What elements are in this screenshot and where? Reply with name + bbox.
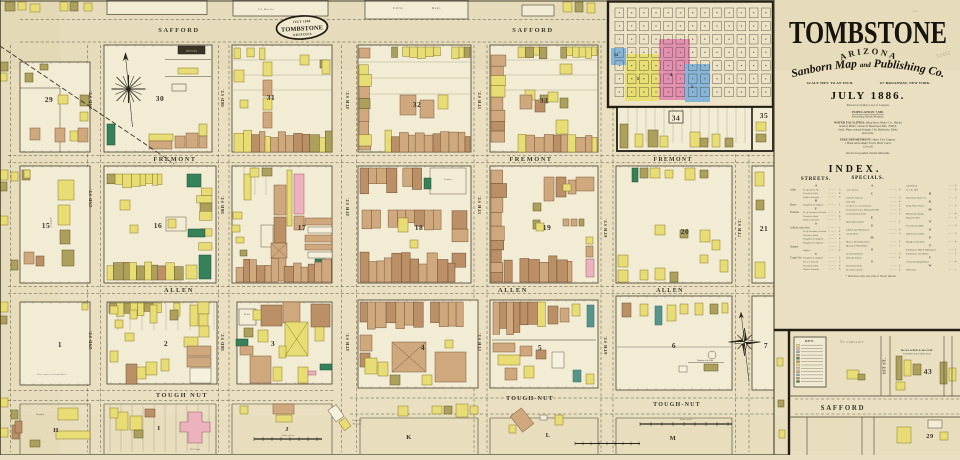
svg-text:Sixth to Seventh: Sixth to Seventh (803, 196, 820, 199)
svg-text:INDEX.: INDEX. (829, 164, 882, 175)
svg-text:SPECIALS.: SPECIALS. (852, 176, 885, 181)
svg-text:I: I (157, 425, 160, 432)
svg-text:14: 14 (614, 52, 618, 57)
svg-text:Sixth to Seventh: Sixth to Seventh (803, 219, 820, 222)
svg-text:Episcopal Church: Episcopal Church (846, 221, 865, 224)
svg-text:SCALE 50FT. TO AN INCH.: SCALE 50FT. TO AN INCH. (807, 81, 854, 85)
svg-text:6TH ST.: 6TH ST. (603, 336, 608, 355)
svg-text:Occidental Hotel: Occidental Hotel (846, 253, 863, 256)
svg-text:1: 1 (58, 340, 62, 349)
svg-text:Gird Block: Gird Block (906, 185, 918, 188)
svg-text:16: 16 (154, 221, 163, 230)
svg-text:TOUGH-NUT: TOUGH-NUT (653, 402, 701, 408)
svg-text:Toughnut to Safford: Toughnut to Safford (803, 238, 824, 241)
svg-text:Masonic Hall: Masonic Hall (906, 217, 920, 220)
svg-text:W. of Second to Fourth: W. of Second to Fourth (803, 211, 827, 214)
svg-text:Cochise Co. Court House: Cochise Co. Court House (846, 205, 872, 208)
svg-text:Gilded Age Mining Co.: Gilded Age Mining Co. (846, 229, 870, 232)
svg-text:U.S. Mail Sta.: U.S. Mail Sta. (258, 8, 275, 11)
svg-text:* Indicates only one side of S: * Indicates only one side of Street show… (846, 275, 897, 278)
svg-text:Tombstone Mill & Mining Co: Tombstone Mill & Mining Co (906, 249, 937, 252)
svg-text:Scale of feet: Scale of feet (282, 434, 294, 437)
svg-text:M.E.Church: M.E.Church (190, 449, 200, 451)
svg-text:No exposure: No exposure (839, 339, 864, 344)
svg-text:Papago Cash Store: Papago Cash Store (906, 241, 926, 244)
svg-text:Fourth to Fifth: Fourth to Fifth (802, 264, 819, 267)
svg-text:ALLEN: ALLEN (656, 288, 684, 294)
svg-text:SAFFORD: SAFFORD (821, 405, 866, 412)
svg-text:4TH ST.: 4TH ST. (345, 333, 350, 352)
svg-text:FOUNDRY & MACHINE SHOP: FOUNDRY & MACHINE SHOP (903, 352, 931, 355)
svg-text:Miners Boarding House: Miners Boarding House (846, 241, 871, 244)
svg-text:STREETS.: STREETS. (801, 177, 831, 182)
svg-text:Sumner: Sumner (790, 245, 798, 248)
svg-text:Pit Sal.: Pit Sal. (244, 314, 251, 316)
svg-text:and wells.: and wells. (862, 131, 874, 135)
svg-text:Allen: Allen (790, 188, 797, 191)
svg-text:New Boston Mill: New Boston Mill (906, 225, 924, 228)
svg-text:Dept.: Dept. (432, 6, 442, 10)
svg-text:2ND ST.: 2ND ST. (88, 91, 93, 110)
svg-text:20: 20 (681, 227, 690, 236)
svg-text:Catholic Church: Catholic Church (846, 197, 863, 200)
svg-text:5: 5 (538, 343, 542, 352)
svg-text:Cosmopolitan Hotel: Cosmopolitan Hotel (846, 213, 867, 216)
svg-text:F: F (815, 206, 817, 210)
svg-text:POPULATION 7,500.: POPULATION 7,500. (852, 110, 884, 114)
svg-text:Vizina Hoisting Works: Vizina Hoisting Works (906, 261, 929, 264)
svg-text:4TH ST.: 4TH ST. (345, 198, 350, 217)
svg-text:Fourth to Sixth: Fourth to Sixth (802, 215, 819, 218)
svg-text:TOUGH NUT: TOUGH NUT (156, 392, 208, 399)
svg-text:Prevailing Winds Westerly.: Prevailing Winds Westerly. (851, 114, 884, 118)
svg-text:4TH ST.: 4TH ST. (345, 91, 350, 110)
svg-text:FREMONT: FREMONT (653, 157, 692, 163)
svg-text:Watervale: Watervale (906, 269, 917, 272)
svg-text:29: 29 (926, 433, 934, 440)
svg-text:Lumber: Lumber (444, 179, 452, 181)
svg-text:L: L (546, 432, 551, 439)
svg-text:M: M (870, 236, 873, 240)
svg-text:Fourth to Sixth: Fourth to Sixth (802, 234, 819, 237)
svg-text:3RD ST.: 3RD ST. (220, 333, 225, 352)
svg-text:7: 7 (764, 341, 768, 350)
svg-text:TOUGH-NUT: TOUGH-NUT (506, 396, 554, 402)
svg-text:SAFFORD: SAFFORD (512, 27, 553, 34)
svg-text:2ND ST.: 2ND ST. (88, 189, 93, 208)
svg-text:5TH ST.: 5TH ST. (477, 196, 482, 215)
svg-text:Vizina Cons: Vizina Cons (352, 420, 362, 422)
svg-text:Contention Cons. Mining & Mill: Contention Cons. Mining & Mill (846, 209, 879, 212)
svg-text:Toughnut to Safford: Toughnut to Safford (803, 204, 824, 207)
svg-text:Schieffelin Hall: Schieffelin Hall (846, 265, 862, 268)
svg-text:Scale of feet: Scale of feet (680, 418, 692, 421)
svg-text:5TH ST.: 5TH ST. (477, 91, 482, 110)
svg-text:First to Second: First to Second (802, 261, 819, 264)
svg-text:KEY.: KEY. (805, 339, 814, 343)
svg-text:ALLEN: ALLEN (498, 287, 528, 294)
svg-text:Fourth to Fifth: Fourth to Fifth (802, 192, 819, 195)
svg-text:TOMBSTONE: TOMBSTONE (789, 14, 947, 50)
svg-text:3RD ST.: 3RD ST. (220, 89, 225, 108)
svg-text:Safford, near First: Safford, near First (790, 226, 810, 229)
svg-text:5TH ST.: 5TH ST. (477, 333, 482, 352)
svg-text:Ariz.: Ariz. (912, 9, 919, 13)
svg-text:Mining Exchange: Mining Exchange (906, 213, 925, 216)
svg-text:City Hall: City Hall (846, 201, 856, 204)
svg-text:ALLEN: ALLEN (164, 287, 194, 294)
svg-text:6: 6 (672, 341, 676, 350)
svg-text:32: 32 (413, 100, 422, 109)
svg-text:C.S.FLY: C.S.FLY (50, 217, 53, 228)
svg-text:M: M (670, 435, 677, 442)
svg-text:Hospital: Hospital (36, 413, 44, 416)
svg-text:117 BROADWAY, NEW YORK.: 117 BROADWAY, NEW YORK. (879, 81, 930, 85)
svg-text:3: 3 (271, 339, 275, 348)
svg-text:S: S (871, 260, 873, 264)
svg-text:FREMONT: FREMONT (153, 156, 196, 163)
svg-text:Tombstone Gas Works: Tombstone Gas Works (906, 253, 929, 256)
svg-text:Tombstone Gas Works: Tombstone Gas Works (697, 360, 714, 362)
svg-text:W. of Second to Fourth: W. of Second to Fourth (803, 230, 827, 233)
svg-text:Fremont: Fremont (790, 211, 799, 214)
svg-text:2ND ST.: 2ND ST. (88, 331, 93, 350)
svg-text:6TH ST.: 6TH ST. (603, 219, 608, 238)
svg-text:33: 33 (540, 96, 549, 105)
svg-text:St. Pauls Church: St. Pauls Church (846, 269, 863, 272)
svg-text:S: S (815, 222, 817, 226)
svg-text:Oriental Saloon: Oriental Saloon (846, 257, 863, 260)
svg-text:P: P (929, 236, 931, 240)
svg-text:Huachuca Water Co.: Huachuca Water Co. (906, 197, 927, 200)
svg-text:Toughnut to Safford: Toughnut to Safford (803, 257, 824, 260)
svg-text:Toughnut to Safford: Toughnut to Safford (803, 242, 824, 245)
svg-text:29: 29 (45, 95, 54, 104)
svg-text:2: 2 (164, 339, 168, 348)
svg-text:W. of 2nd to 7th: W. of 2nd to 7th (803, 188, 820, 191)
svg-text:FREMONT: FREMONT (509, 156, 552, 163)
svg-text:McALLISTER & McCONE: McALLISTER & McCONE (901, 349, 933, 352)
svg-text:SAFFORD: SAFFORD (158, 27, 199, 34)
svg-text:21: 21 (760, 224, 769, 233)
svg-text:31: 31 (267, 93, 276, 102)
svg-text:Grand Hotel: Grand Hotel (846, 233, 859, 236)
svg-text:Safford: Safford (803, 249, 811, 252)
svg-text:E: E (871, 216, 873, 220)
svg-text:Fifth to Seventh: Fifth to Seventh (802, 268, 820, 271)
svg-text:Mountain Maid Mine: Mountain Maid Mine (846, 245, 868, 248)
svg-text:30: 30 (156, 94, 165, 103)
svg-text:17: 17 (298, 223, 307, 232)
svg-text:4: 4 (421, 343, 425, 352)
svg-text:Mining Co: Mining Co (353, 423, 362, 426)
svg-text:Cable: Cable (393, 6, 403, 10)
svg-text:Kelly Wine House: Kelly Wine House (906, 205, 925, 208)
svg-text:15: 15 (42, 221, 51, 230)
svg-text:M: M (928, 208, 931, 212)
svg-text:7TH ST.: 7TH ST. (737, 219, 742, 238)
svg-text:1ST ST.: 1ST ST. (882, 358, 887, 374)
svg-text:12 in all.: 12 in all. (863, 145, 874, 149)
svg-text:Aztec House: Aztec House (846, 189, 860, 192)
svg-text:Streets not graded. Paved side: Streets not graded. Paved sidewalks. (846, 151, 890, 155)
svg-text:J: J (285, 426, 289, 433)
svg-text:35: 35 (760, 111, 769, 120)
svg-text:G.A.R. Hall: G.A.R. Hall (906, 189, 918, 192)
svg-text:19: 19 (543, 223, 552, 232)
svg-text:H: H (53, 427, 59, 434)
svg-text:Tough Nut: Tough Nut (790, 257, 802, 260)
svg-text:3RD ST.: 3RD ST. (220, 196, 225, 215)
svg-text:Bruce: Bruce (790, 204, 797, 207)
svg-text:43: 43 (924, 367, 933, 376)
svg-text:34: 34 (672, 114, 681, 123)
svg-text:Rear Annex of Grand Hotel: Rear Annex of Grand Hotel (37, 373, 66, 376)
svg-text:Entered according to Act of Co: Entered according to Act of Congress (847, 104, 890, 107)
svg-text:JULY 1886.: JULY 1886. (831, 90, 906, 102)
svg-text:Odd Fellows Hall: Odd Fellows Hall (906, 233, 924, 236)
svg-text:K: K (406, 434, 412, 441)
svg-text:18: 18 (415, 223, 424, 232)
svg-text:Drill Corral: Drill Corral (186, 50, 198, 53)
